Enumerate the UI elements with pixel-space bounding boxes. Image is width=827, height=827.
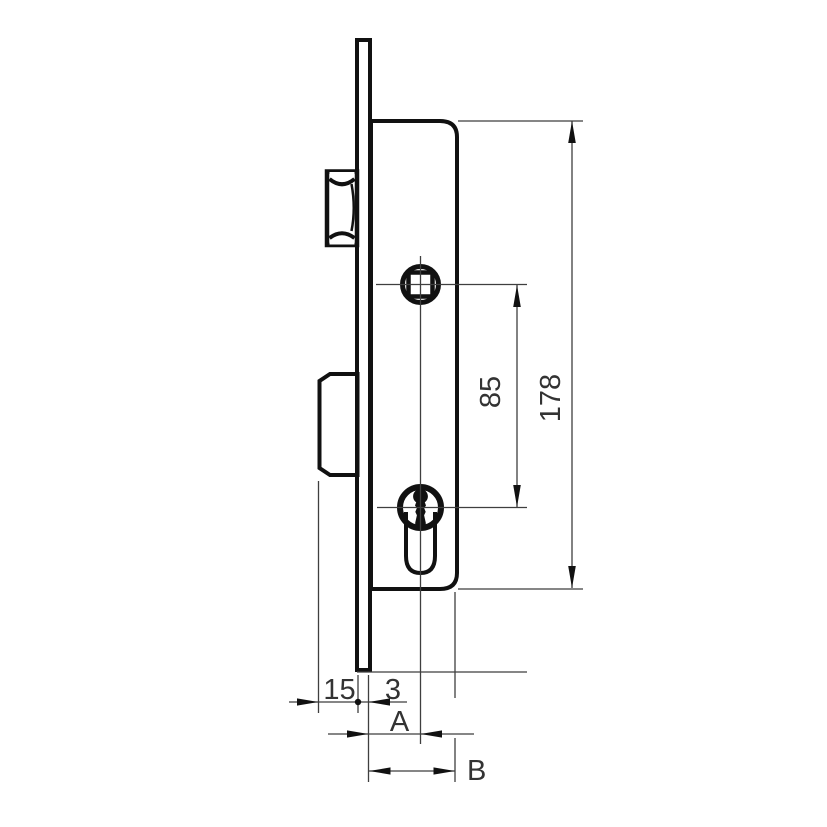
- arrow-b-left: [369, 767, 391, 774]
- arrow-178-top: [568, 121, 576, 143]
- arrow-85-bottom: [513, 485, 521, 507]
- dim-label-b: B: [467, 755, 486, 787]
- arrow-a-right: [421, 730, 443, 737]
- latch-roller: [327, 172, 357, 246]
- dim-label-85: 85: [475, 376, 507, 408]
- faceplate: [357, 40, 370, 670]
- arrow-15-left: [297, 698, 319, 705]
- arrow-a-left: [347, 730, 369, 737]
- dim-label-3: 3: [385, 674, 401, 706]
- dimension-case-height: 178: [535, 121, 576, 588]
- dimension-backset-a: A: [328, 706, 474, 738]
- dim-label-15: 15: [323, 674, 355, 706]
- arrow-85-top: [513, 285, 521, 307]
- dimension-spindle-to-cylinder: 85: [475, 285, 521, 507]
- dim-label-a: A: [390, 706, 410, 738]
- latch-curve-line: [352, 184, 354, 231]
- dim-dot-15-3: [355, 699, 361, 705]
- arrow-178-bottom: [568, 566, 576, 588]
- dimension-bolt-throw-and-faceplate: 15 3: [289, 674, 407, 706]
- dim-label-178: 178: [535, 374, 567, 422]
- dimension-case-depth-b: B: [369, 755, 486, 787]
- deadbolt: [320, 374, 358, 475]
- drawing-svg: 178 85 15 3 A B: [0, 0, 827, 827]
- lock-body-group: [320, 40, 458, 670]
- arrow-b-right: [434, 767, 456, 774]
- lock-case: [371, 121, 457, 589]
- lock-technical-drawing: 178 85 15 3 A B: [0, 0, 827, 827]
